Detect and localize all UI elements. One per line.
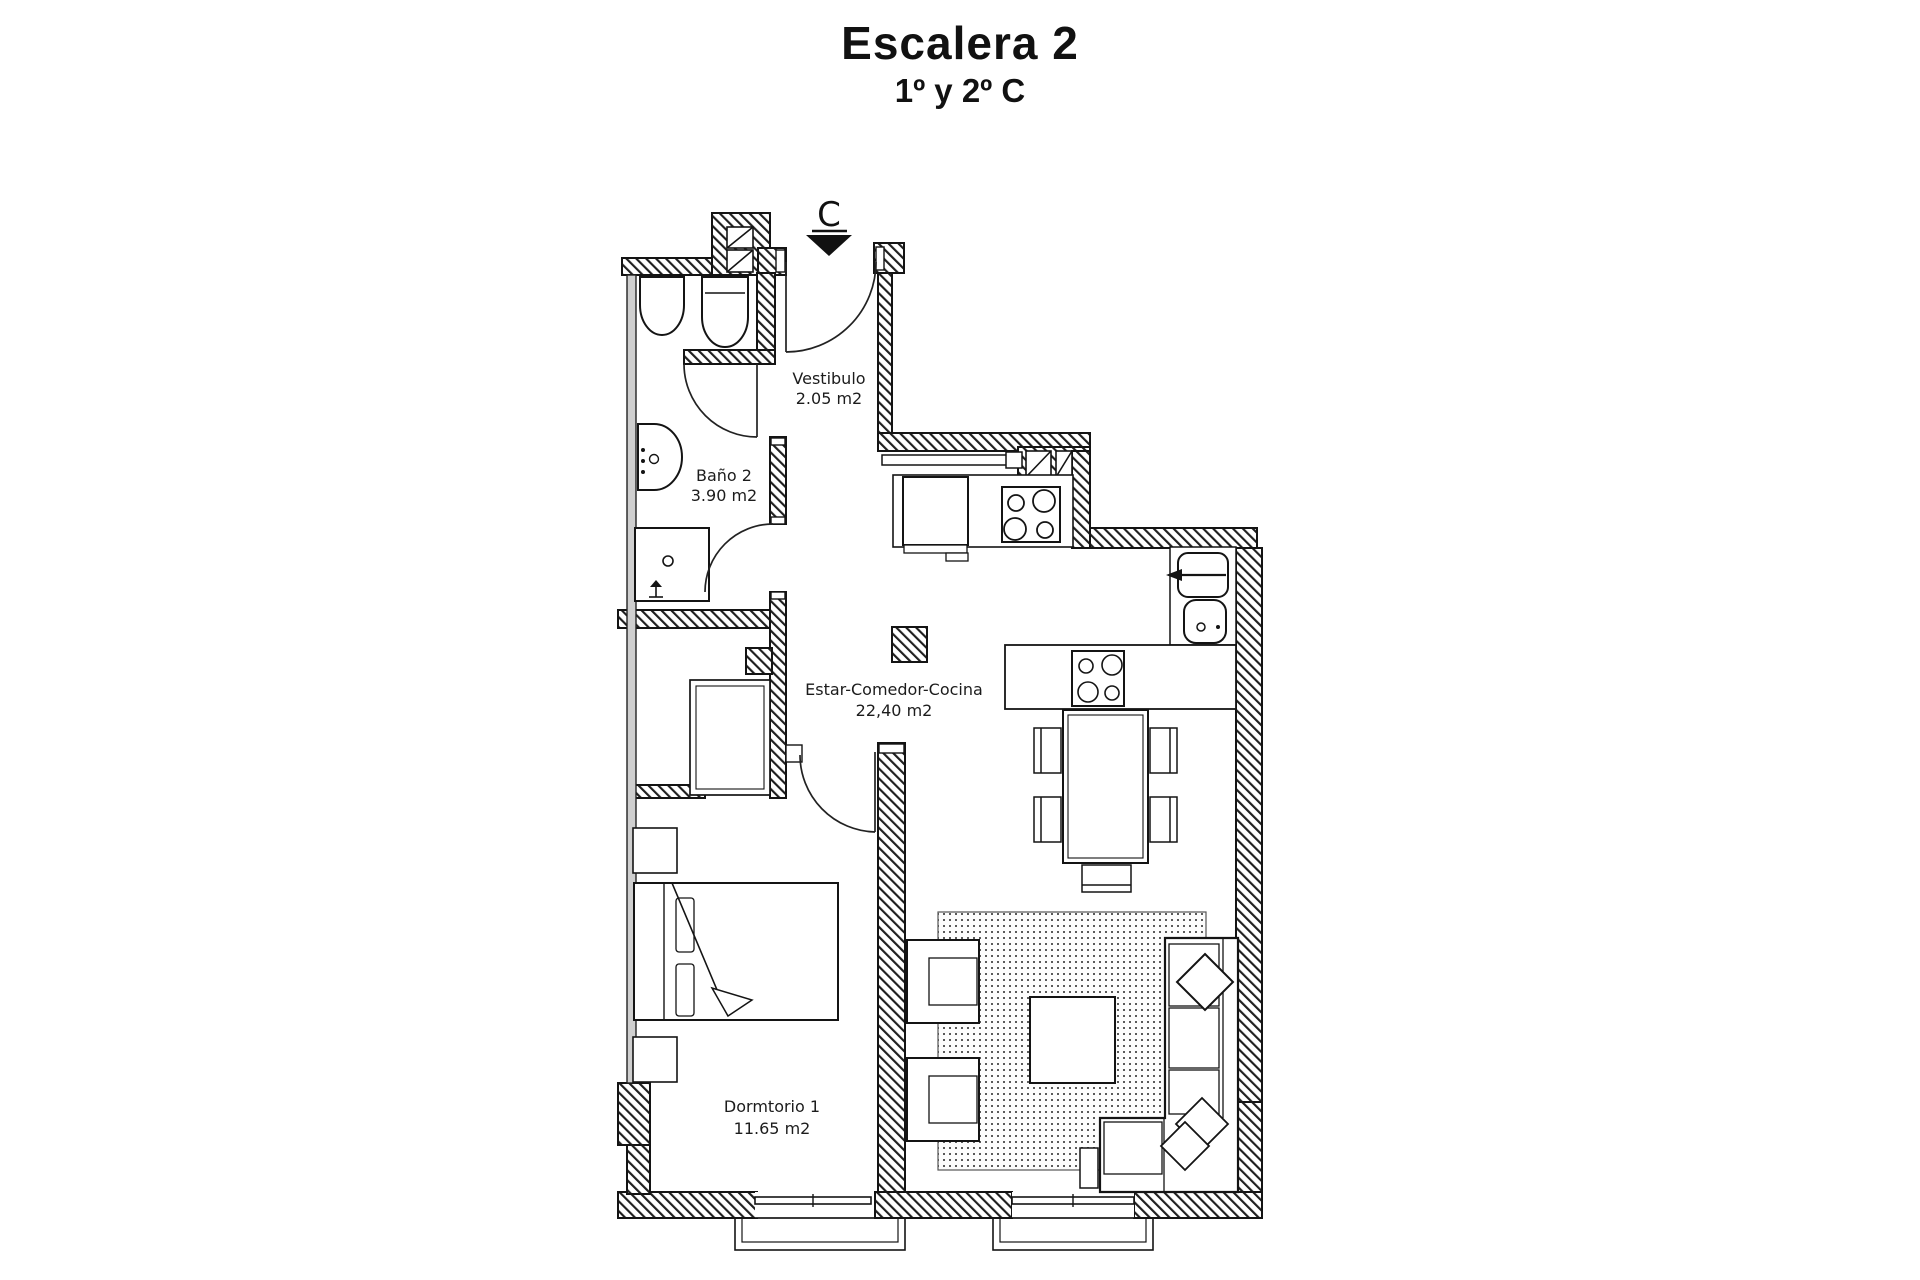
wall-bottom-mid-pier xyxy=(875,1192,1012,1218)
shaft-icon xyxy=(1026,451,1051,477)
svg-text:Baño 2: Baño 2 xyxy=(696,466,752,485)
fridge-icon xyxy=(903,477,968,561)
chair-icon xyxy=(1150,797,1177,842)
wall-bottom-right xyxy=(1134,1192,1262,1218)
svg-text:22,40 m2: 22,40 m2 xyxy=(856,701,933,720)
jamb-cap xyxy=(771,438,785,445)
svg-text:11.65 m2: 11.65 m2 xyxy=(734,1119,811,1138)
svg-text:3.90 m2: 3.90 m2 xyxy=(691,486,757,505)
wall-bath-closet-divider xyxy=(618,610,781,628)
structural-column-closet xyxy=(746,648,772,674)
room-label-bano2: Baño 2 3.90 m2 xyxy=(691,466,757,505)
toilet-icon xyxy=(640,277,684,335)
bedroom-door-arc xyxy=(800,752,875,832)
nightstand-icon xyxy=(633,828,677,873)
bidet-icon xyxy=(702,277,748,347)
peninsula-counter xyxy=(1005,645,1236,709)
armchair-icon xyxy=(907,940,979,1023)
room-label-vestibulo: Vestibulo 2.05 m2 xyxy=(792,369,865,408)
wall-bath-right-mid xyxy=(770,437,786,524)
nightstand-icon xyxy=(633,1037,677,1082)
wall-bottom-left xyxy=(618,1192,757,1218)
wall-bedroom-living-divider xyxy=(878,743,905,1192)
floorplan-page: Escalera 2 1º y 2º C xyxy=(0,0,1920,1280)
wall-top-right xyxy=(1090,528,1257,548)
bathroom-door-arc xyxy=(705,524,773,592)
side-table-icon xyxy=(1080,1148,1098,1188)
svg-text:Vestibulo: Vestibulo xyxy=(792,369,865,388)
wall-left-pier-lower xyxy=(627,1145,650,1194)
chair-icon xyxy=(1082,865,1131,892)
entrance-letter: C xyxy=(817,195,841,235)
chair-icon xyxy=(1034,728,1061,773)
entrance-door-arc xyxy=(786,262,876,352)
svg-text:Estar-Comedor-Cocina: Estar-Comedor-Cocina xyxy=(805,680,983,699)
wall-closet-right xyxy=(770,592,786,798)
oven-hob-icon xyxy=(1002,487,1060,542)
jamb-cap xyxy=(771,517,785,524)
bed-icon xyxy=(634,883,838,1020)
svg-text:2.05 m2: 2.05 m2 xyxy=(796,389,862,408)
shaft-icon xyxy=(727,227,753,248)
dining-table-icon xyxy=(1063,710,1148,863)
wall-segment xyxy=(1072,451,1090,548)
shower-icon xyxy=(635,528,709,601)
room-label-estar-comedor-cocina: Estar-Comedor-Cocina 22,40 m2 xyxy=(805,680,983,720)
wc-door-arc xyxy=(684,364,757,437)
svg-text:Dormtorio 1: Dormtorio 1 xyxy=(724,1097,820,1116)
armchair-icon xyxy=(907,1058,979,1141)
wardrobe-icon xyxy=(690,680,770,795)
room-label-dormitorio1: Dormtorio 1 11.65 m2 xyxy=(724,1097,820,1138)
jamb-cap xyxy=(771,592,785,599)
wall-wc-band xyxy=(684,350,775,364)
wall-vestibule-right xyxy=(878,273,892,433)
coffee-table-icon xyxy=(1030,997,1115,1083)
chair-icon xyxy=(1150,728,1177,773)
entrance-marker: C xyxy=(806,195,852,256)
jamb-cap xyxy=(876,247,884,270)
bathroom-sink-icon xyxy=(638,424,682,490)
shaft-icon xyxy=(1056,451,1072,477)
counter-shelf xyxy=(882,452,1022,468)
entrance-arrow-icon xyxy=(806,235,852,256)
window-living xyxy=(993,1192,1153,1250)
jamb-cap xyxy=(776,250,785,272)
floorplan-drawing: C Vestibulo 2.05 m2 Baño 2 3.90 m2 Estar… xyxy=(0,0,1920,1280)
jamb-cap xyxy=(879,744,904,753)
wall-left-pier xyxy=(618,1083,650,1145)
wall-segment xyxy=(622,258,715,275)
shaft-icon xyxy=(727,250,753,272)
wall-right xyxy=(1236,548,1262,1108)
chair-icon xyxy=(1034,797,1061,842)
structural-column xyxy=(892,627,927,662)
